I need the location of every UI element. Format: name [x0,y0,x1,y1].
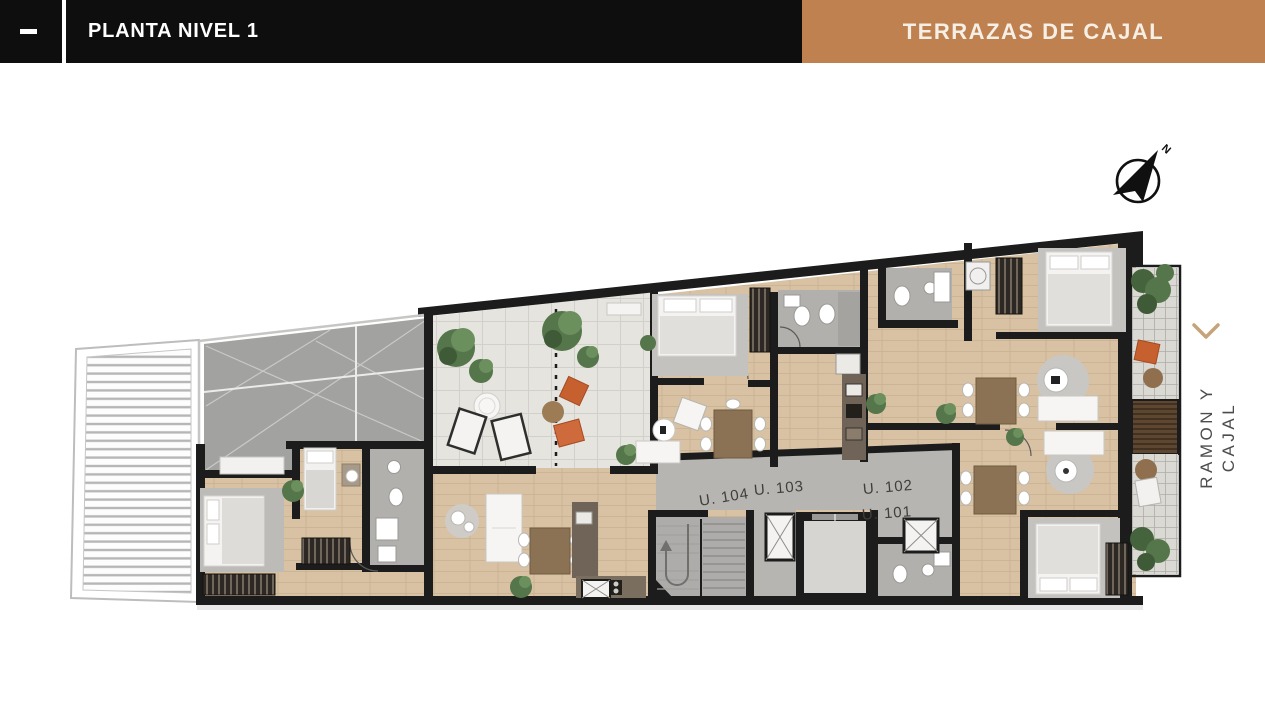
bed-bottom-right [1036,524,1100,594]
shower-top [838,292,860,346]
coffee-table [451,511,465,525]
washer [966,262,990,290]
closet [302,538,350,564]
plant [577,346,599,368]
sofa-u101 [1044,431,1104,455]
kids-desk [342,464,360,486]
white-chair-balcony [1135,477,1161,506]
plant [469,359,493,383]
elevator [796,512,874,600]
plant [510,576,532,598]
floor-plan: U. 104 U. 103 U. 102 U. 101 [0,0,1265,709]
bench-mid [636,441,680,463]
floorplan-page: PLANTA NIVEL 1 TERRAZAS DE CAJAL N RAMON… [0,0,1265,709]
plant [1006,428,1024,446]
building-shadow [197,605,1143,610]
bed-top-right [1046,252,1112,326]
plant [640,335,656,351]
plant [282,480,304,502]
console-bedroom [220,457,284,474]
bed-mid-unit [658,296,736,356]
unit-label-u101: U. 101 [861,503,912,523]
orange-chair-balcony [1134,340,1160,364]
sofa-u102 [1038,396,1098,421]
closet [1106,543,1128,595]
bed-master-left [204,496,264,566]
closet [203,574,275,595]
louvered-ramp-panel [71,340,199,602]
closet [996,258,1022,314]
closet [750,288,770,352]
plant [542,311,582,351]
bed-kids [304,448,336,510]
